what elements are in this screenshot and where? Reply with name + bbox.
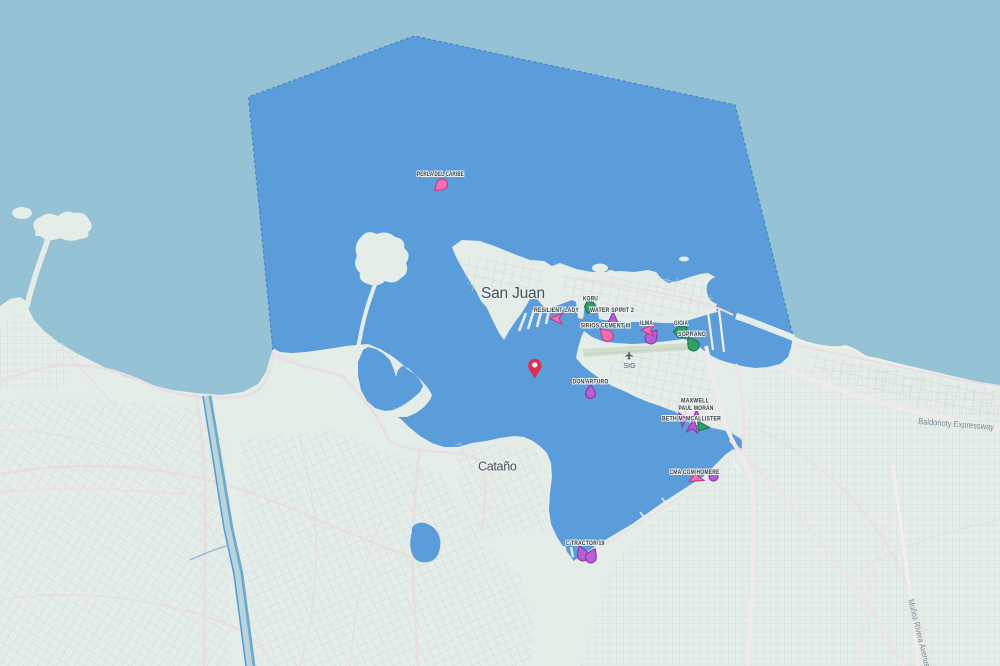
svg-text:GIGIA: GIGIA xyxy=(674,320,688,327)
svg-text:WATER SPIRIT 2: WATER SPIRIT 2 xyxy=(590,307,634,314)
svg-text:MAXWELL: MAXWELL xyxy=(681,398,709,405)
svg-text:SIG: SIG xyxy=(624,363,636,370)
svg-text:SIRIOS CEMENT III: SIRIOS CEMENT III xyxy=(581,323,631,330)
svg-text:Cataño: Cataño xyxy=(478,460,517,474)
svg-text:SOPRANO: SOPRANO xyxy=(678,331,706,338)
svg-text:San Juan: San Juan xyxy=(481,285,545,302)
svg-text:PERLA DEL CARIBE: PERLA DEL CARIBE xyxy=(417,171,464,178)
svg-text:C TRACTOR 19: C TRACTOR 19 xyxy=(566,540,605,547)
svg-text:DON ARTURO: DON ARTURO xyxy=(573,379,609,386)
svg-text:PAUL MORÁN: PAUL MORÁN xyxy=(679,405,714,412)
svg-text:KORU: KORU xyxy=(583,296,598,303)
svg-text:ILMA: ILMA xyxy=(640,320,653,327)
svg-text:RESILIENT LADY: RESILIENT LADY xyxy=(534,307,580,314)
svg-text:CMA CGM HOMERE: CMA CGM HOMERE xyxy=(670,469,720,476)
svg-text:BETH M. MCALLISTER: BETH M. MCALLISTER xyxy=(662,416,721,423)
